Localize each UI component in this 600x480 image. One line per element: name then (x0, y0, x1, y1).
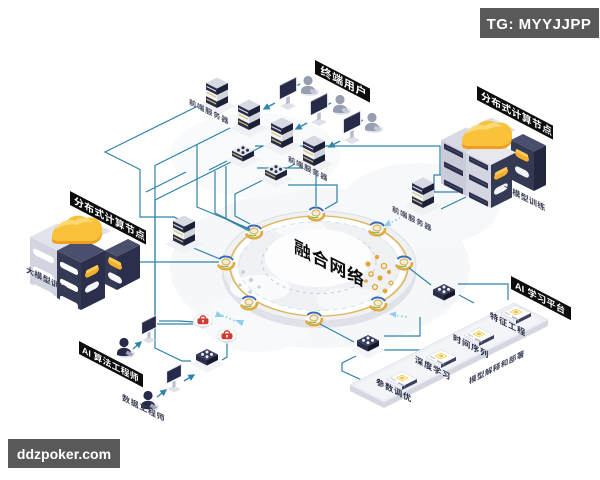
svg-text:ddzpoker.com: ddzpoker.com (17, 446, 111, 462)
svg-text:TG: MYYJJPP: TG: MYYJJPP (487, 16, 592, 33)
